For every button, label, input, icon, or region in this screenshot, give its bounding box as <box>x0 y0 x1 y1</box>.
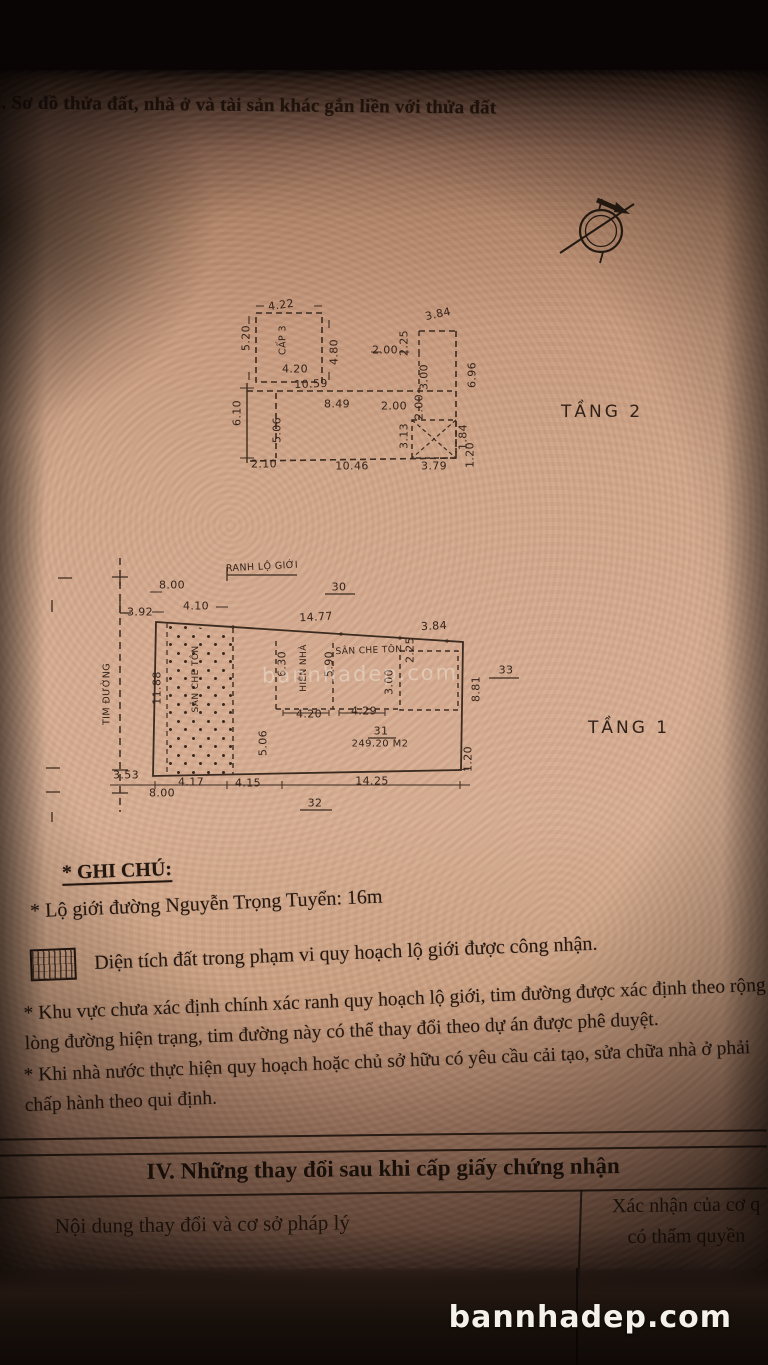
plan-dim-label: SÂN CHE TÔN <box>191 646 201 713</box>
plan-dim-label: 30 <box>332 581 347 594</box>
plan-dim-label: 32 <box>308 797 323 810</box>
plan-dim-label: 11.88 <box>151 671 164 705</box>
plan-dim-label: 6.10 <box>231 400 244 426</box>
table-col-right-header: Xác nhận của cơ q có thẩm quyền <box>593 1189 768 1253</box>
plan-dim-label: 2.25 <box>404 637 417 663</box>
plan-dim-label: 4.15 <box>235 777 261 790</box>
plan-dim-label: 6.96 <box>466 362 479 388</box>
plan-dim-label: TIM ĐƯỜNG <box>102 663 113 725</box>
photo-dark-top-band <box>0 0 768 74</box>
plan-dim-label: 4.20 <box>296 708 322 721</box>
table-col-right-line2: có thẩm quyền <box>627 1225 745 1248</box>
plan-dim-label: 8.00 <box>159 579 185 592</box>
plan-dim-label: 14.77 <box>299 610 333 625</box>
plan-dim-label: 2.10 <box>251 458 277 471</box>
plan-dim-label: 4.29 <box>351 705 377 718</box>
floor1-plan-geometry <box>46 558 519 822</box>
notes-heading: * GHI CHÚ: <box>62 858 173 885</box>
plan-dim-label: 8.49 <box>324 398 350 411</box>
plan-dim-label: 4.80 <box>328 339 341 365</box>
plan-dim-label: 10.46 <box>335 460 369 473</box>
plan-dim-label: 2.25 <box>398 330 411 356</box>
plan-dim-label: 8.00 <box>149 787 175 800</box>
table-col-right-line1: Xác nhận của cơ q <box>612 1193 761 1217</box>
plan-dim-label: 4.20 <box>282 363 308 376</box>
plan-dim-label: 10.59 <box>294 377 328 391</box>
plan-dim-label: 3.13 <box>398 423 411 449</box>
plan-dim-label: 249.20 M2 <box>352 739 409 750</box>
plan-dim-label: 5.06 <box>271 417 284 443</box>
plan-dim-label: 2.00 <box>413 394 426 420</box>
table-top-rule <box>0 1129 767 1140</box>
plan-dim-label: CẤP 3 <box>278 325 289 355</box>
plan-dim-label: 8.81 <box>470 676 483 702</box>
plan-dim-label: 5.20 <box>240 325 253 351</box>
section-iv-title: IV. Những thay đổi sau khi cấp giấy chứn… <box>0 1151 767 1186</box>
plan-dim-label: 3.84 <box>421 619 448 633</box>
plan-dim-label: 3.92 <box>127 606 153 619</box>
plan-dim-label: 31 <box>374 725 389 738</box>
hatch-legend-swatch <box>30 948 77 982</box>
floor2-name: TẦNG 2 <box>561 402 643 422</box>
north-arrow-icon <box>560 199 634 263</box>
plan-dim-label: 2.00 <box>372 344 398 357</box>
plan-dim-label: 4.10 <box>183 600 209 613</box>
plan-dim-label: 3.79 <box>421 460 447 473</box>
plan-dim-label: 1.20 <box>464 442 477 468</box>
plan-dim-label: 14.25 <box>355 775 389 788</box>
plan-dim-label: 1.20 <box>462 746 475 772</box>
table-col-left-header: Nội dung thay đổi và cơ sở pháp lý <box>55 1210 350 1239</box>
watermark: bannhadep.com <box>262 660 458 687</box>
plan-dim-label: 33 <box>499 664 514 677</box>
plan-dim-label: 5.06 <box>257 730 270 756</box>
footer-watermark: bannhadep.com <box>449 1300 732 1335</box>
plan-dim-label: 2.00 <box>381 400 407 413</box>
photo-dark-bottom-band: bannhadep.com <box>0 1268 768 1365</box>
photographed-land-certificate-page: I. Sơ đồ thửa đất, nhà ở và tài sản khác… <box>0 0 768 1365</box>
plan-dim-label: 4.17 <box>178 776 204 789</box>
plan-dim-label: 3.00 <box>418 364 431 390</box>
floor1-name: TẦNG 1 <box>588 718 670 738</box>
plan-dim-label: 3.53 <box>113 769 139 782</box>
